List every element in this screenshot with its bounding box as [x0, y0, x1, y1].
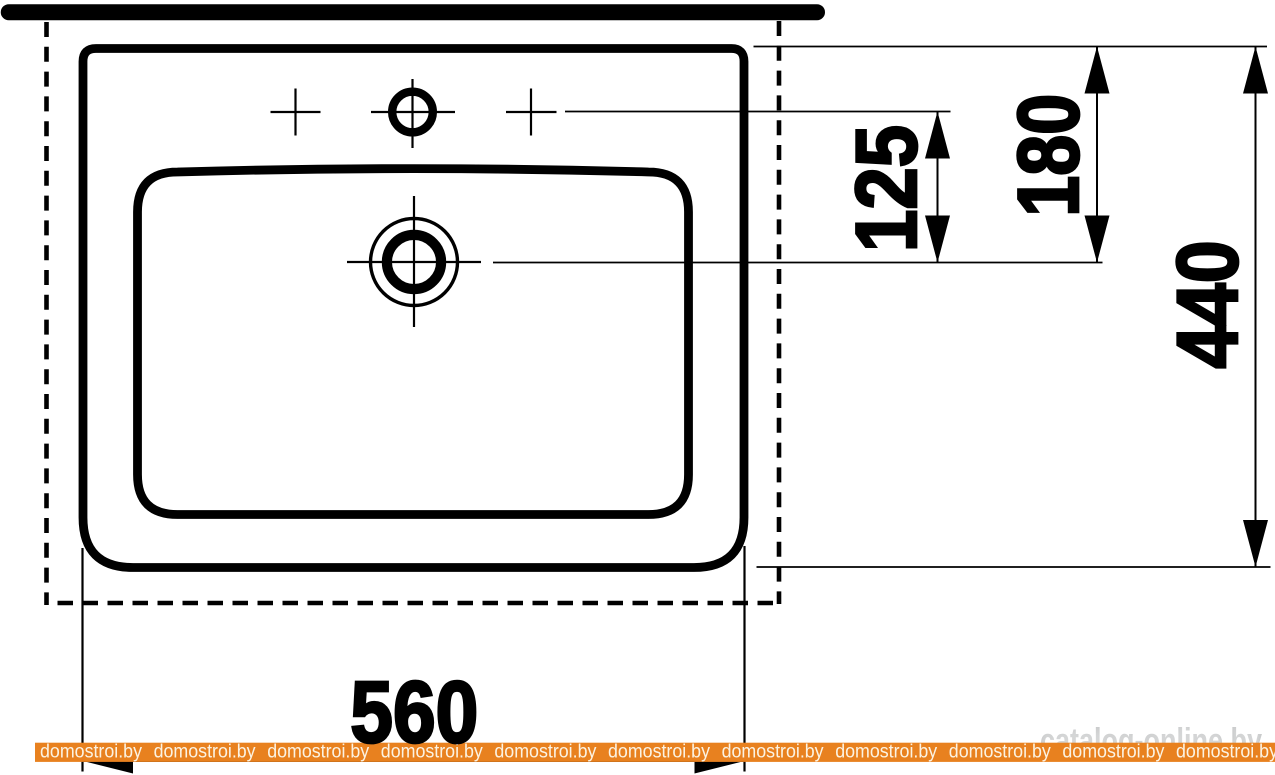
- svg-text:domostroi.by: domostroi.by: [494, 741, 596, 763]
- svg-text:domostroi.by: domostroi.by: [835, 741, 937, 763]
- svg-text:domostroi.by: domostroi.by: [608, 741, 710, 763]
- svg-text:180: 180: [1001, 94, 1097, 217]
- svg-text:domostroi.by: domostroi.by: [1176, 741, 1275, 763]
- svg-text:domostroi.by: domostroi.by: [722, 741, 824, 763]
- svg-text:domostroi.by: domostroi.by: [1062, 741, 1164, 763]
- svg-text:560: 560: [350, 664, 478, 761]
- svg-text:domostroi.by: domostroi.by: [154, 741, 256, 763]
- svg-text:domostroi.by: domostroi.by: [949, 741, 1051, 763]
- svg-text:domostroi.by: domostroi.by: [40, 741, 142, 763]
- svg-text:440: 440: [1160, 241, 1256, 369]
- svg-text:125: 125: [839, 125, 935, 252]
